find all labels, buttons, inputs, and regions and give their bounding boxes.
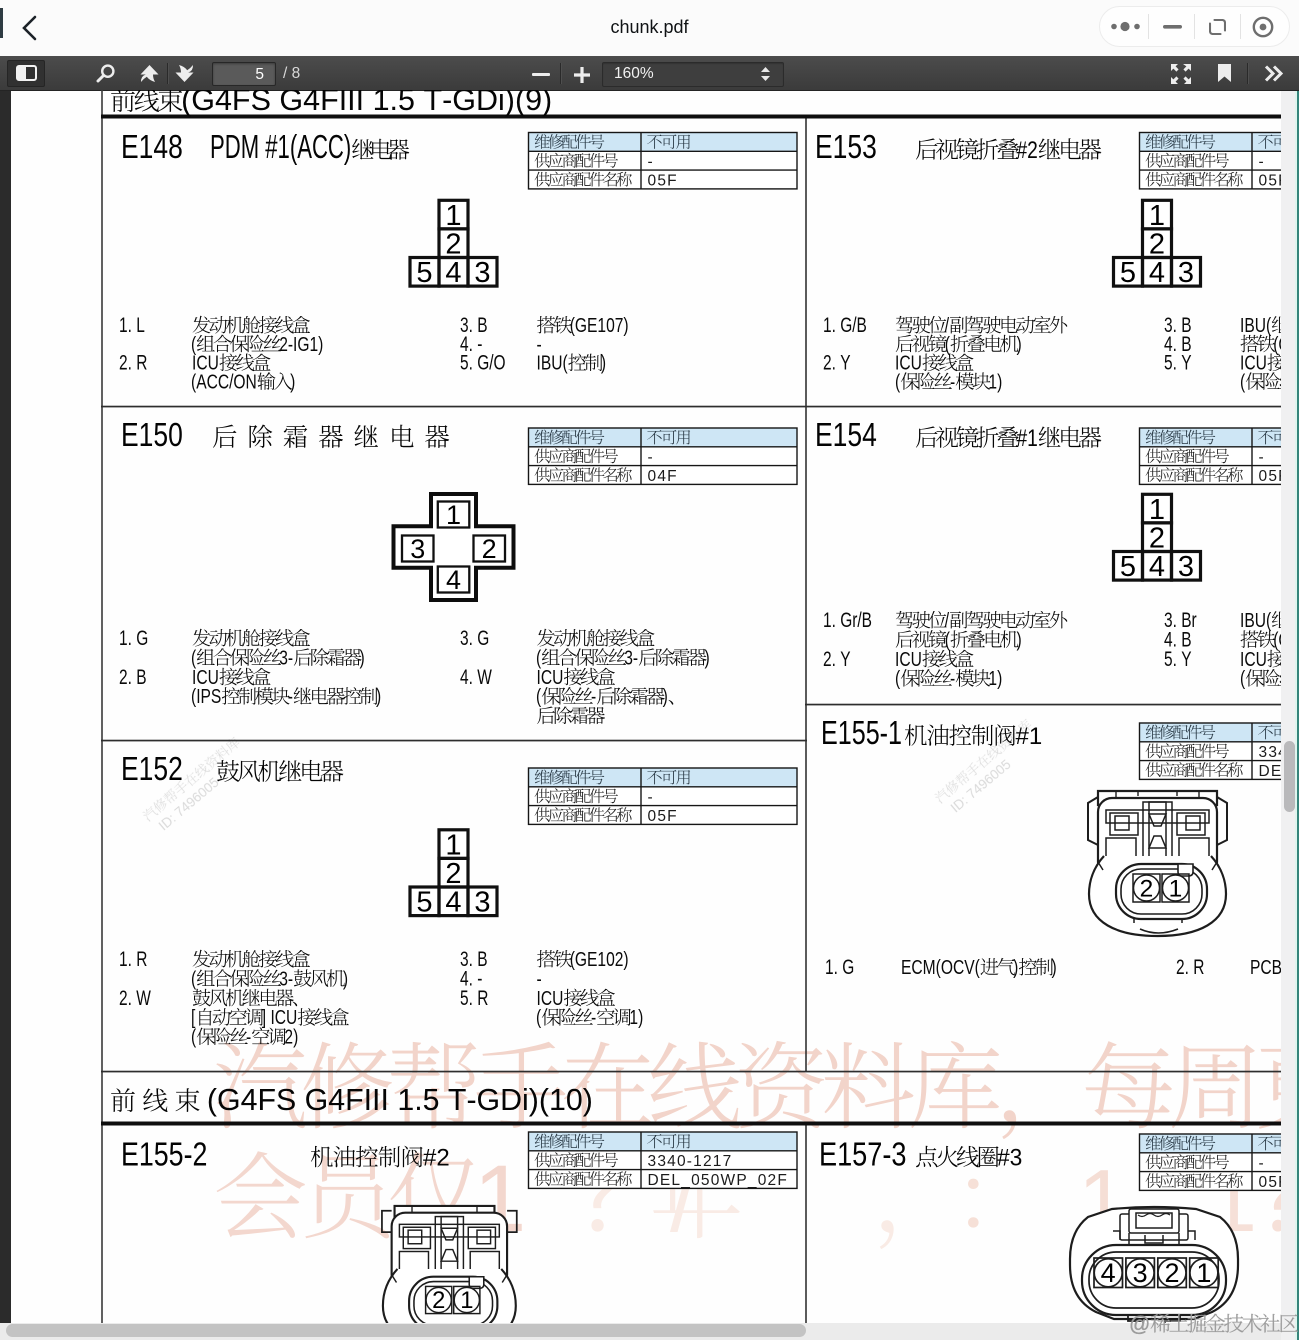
svg-text:@: @ [1129, 1313, 1150, 1336]
